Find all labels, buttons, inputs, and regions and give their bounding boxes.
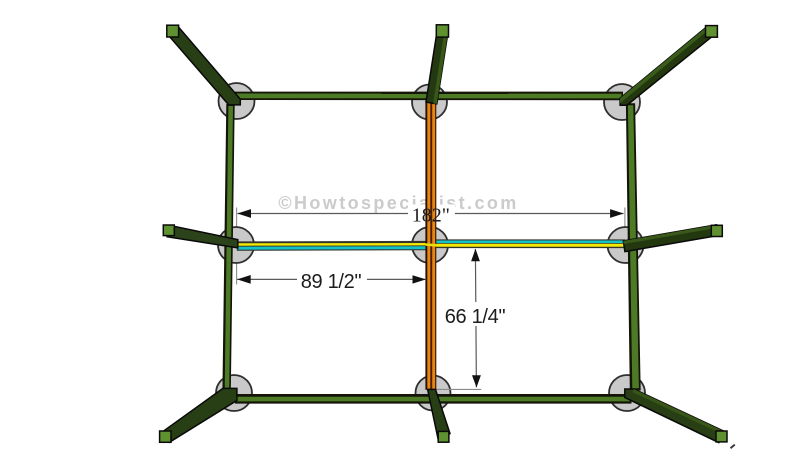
- svg-text:©Howtospecialist.com: ©Howtospecialist.com: [278, 193, 518, 213]
- svg-text:66 1/4": 66 1/4": [445, 306, 506, 328]
- svg-text:182": 182": [412, 204, 450, 226]
- svg-text:89 1/2": 89 1/2": [301, 271, 362, 293]
